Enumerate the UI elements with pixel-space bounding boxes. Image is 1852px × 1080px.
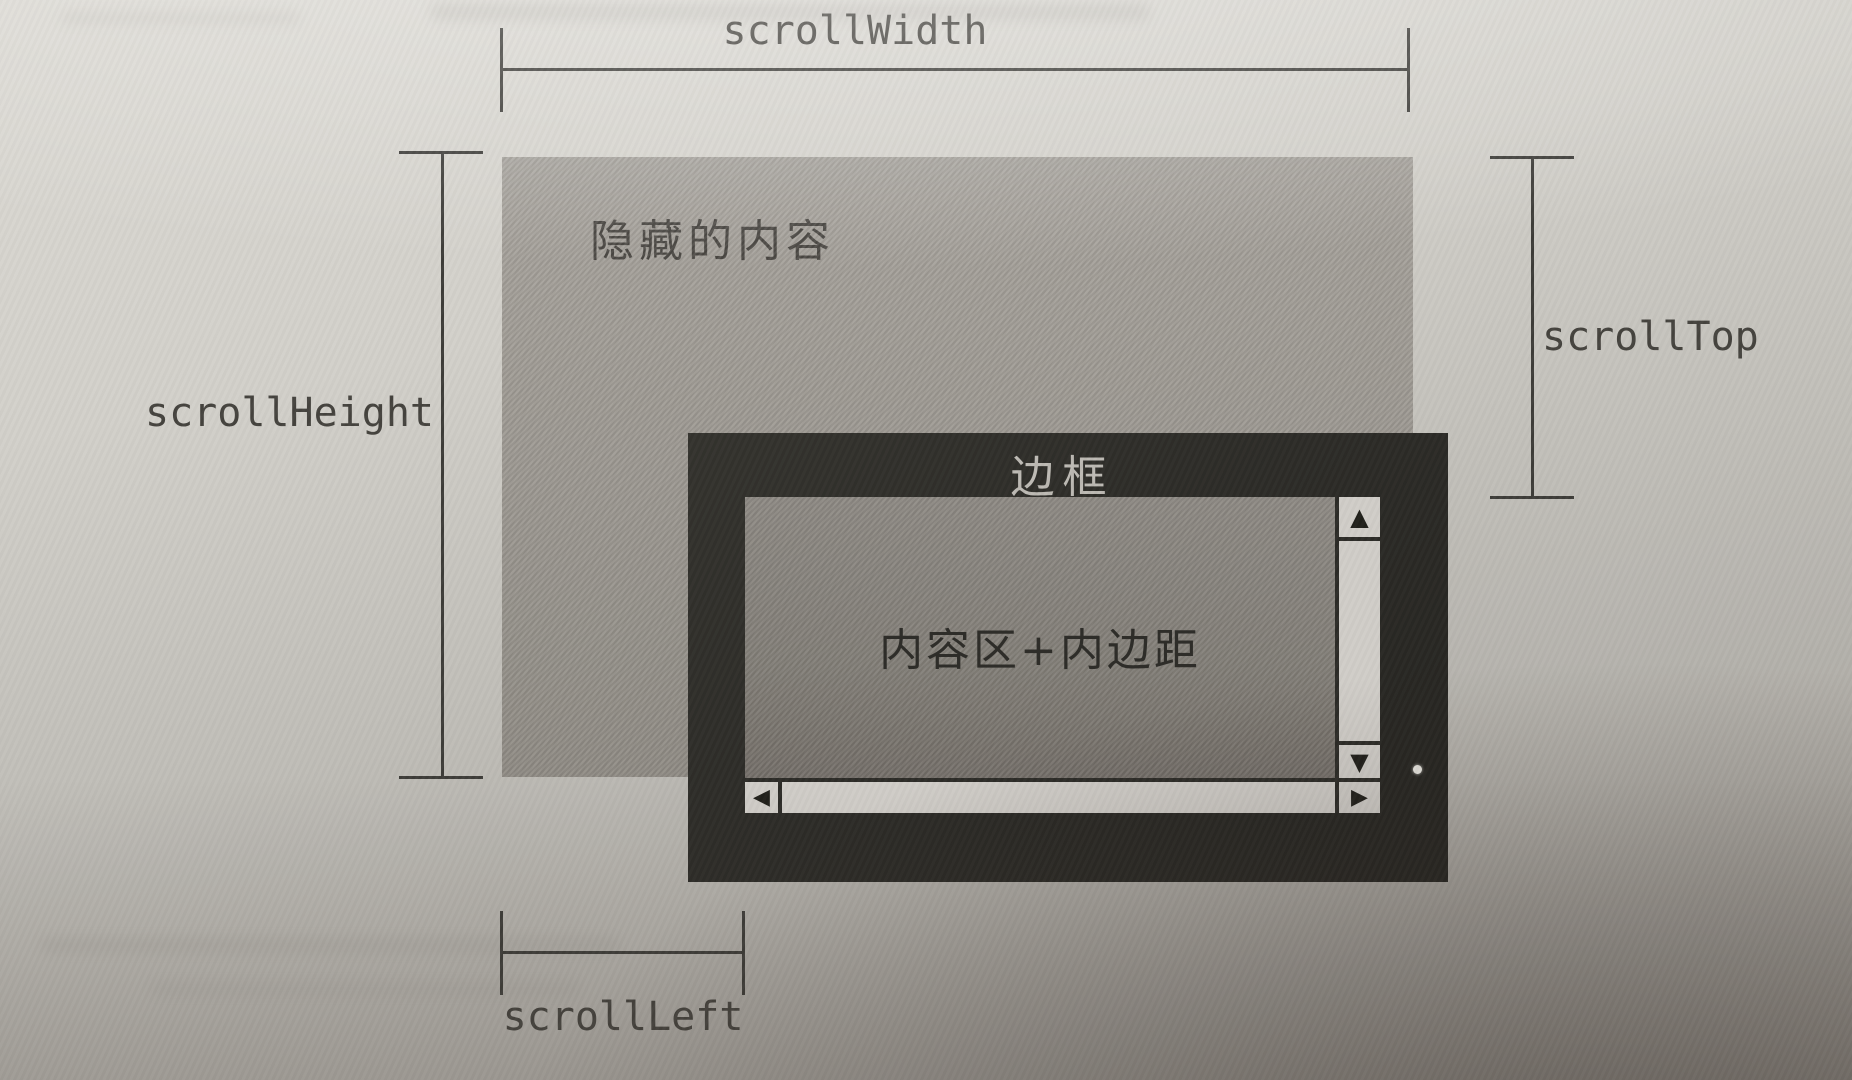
scrolltop-top-tick	[1490, 156, 1574, 159]
border-label: 边框	[745, 441, 1380, 505]
scrollheight-top-tick	[399, 151, 483, 154]
viewport-inner: 内容区+内边距 ▲ ▼ ◀ ▶	[745, 497, 1380, 813]
content-area-label: 内容区+内边距	[879, 614, 1201, 678]
left-arrow-icon: ◀	[753, 787, 770, 809]
scrolltop-label: scrollTop	[1542, 314, 1759, 360]
scrollleft-label: scrollLeft	[503, 994, 744, 1040]
scrollheight-label: scrollHeight	[145, 390, 434, 436]
vertical-scrollbar-track[interactable]	[1339, 541, 1380, 741]
horizontal-scrollbar[interactable]: ◀ ▶	[745, 778, 1380, 813]
scroll-down-button[interactable]: ▼	[1339, 741, 1380, 778]
scrolltop-bottom-tick	[1490, 496, 1574, 499]
scroll-right-button[interactable]: ▶	[1335, 782, 1380, 813]
scrollwidth-left-tick	[500, 28, 503, 112]
scrollleft-right-tick	[742, 911, 745, 995]
scrollwidth-label: scrollWidth	[723, 8, 988, 54]
content-area: 内容区+内边距	[745, 497, 1335, 778]
horizontal-scrollbar-track[interactable]	[782, 782, 1335, 813]
right-arrow-icon: ▶	[1351, 787, 1368, 809]
element-viewport-box: 边框 内容区+内边距 ▲ ▼ ◀ ▶	[688, 433, 1448, 882]
vertical-scrollbar[interactable]: ▲ ▼	[1335, 497, 1380, 778]
down-arrow-icon: ▼	[1350, 750, 1368, 774]
scrollleft-left-tick	[500, 911, 503, 995]
hidden-content-label: 隐藏的内容	[590, 205, 835, 269]
scrollwidth-measure-line	[502, 68, 1410, 71]
bleed-artifact	[60, 12, 300, 24]
scrollheight-measure-line	[441, 153, 444, 779]
scrollheight-bottom-tick	[399, 776, 483, 779]
scrollleft-measure-line	[502, 951, 745, 954]
scrollwidth-right-tick	[1407, 28, 1410, 112]
bleed-artifact	[40, 938, 620, 952]
book-page: scrollWidth scrollHeight scrollTop scrol…	[0, 0, 1852, 1080]
scroll-left-button[interactable]: ◀	[745, 782, 782, 813]
up-arrow-icon: ▲	[1350, 505, 1368, 529]
paper-speck	[1413, 765, 1422, 774]
scroll-up-button[interactable]: ▲	[1339, 497, 1380, 541]
scrolltop-measure-line	[1531, 158, 1534, 499]
